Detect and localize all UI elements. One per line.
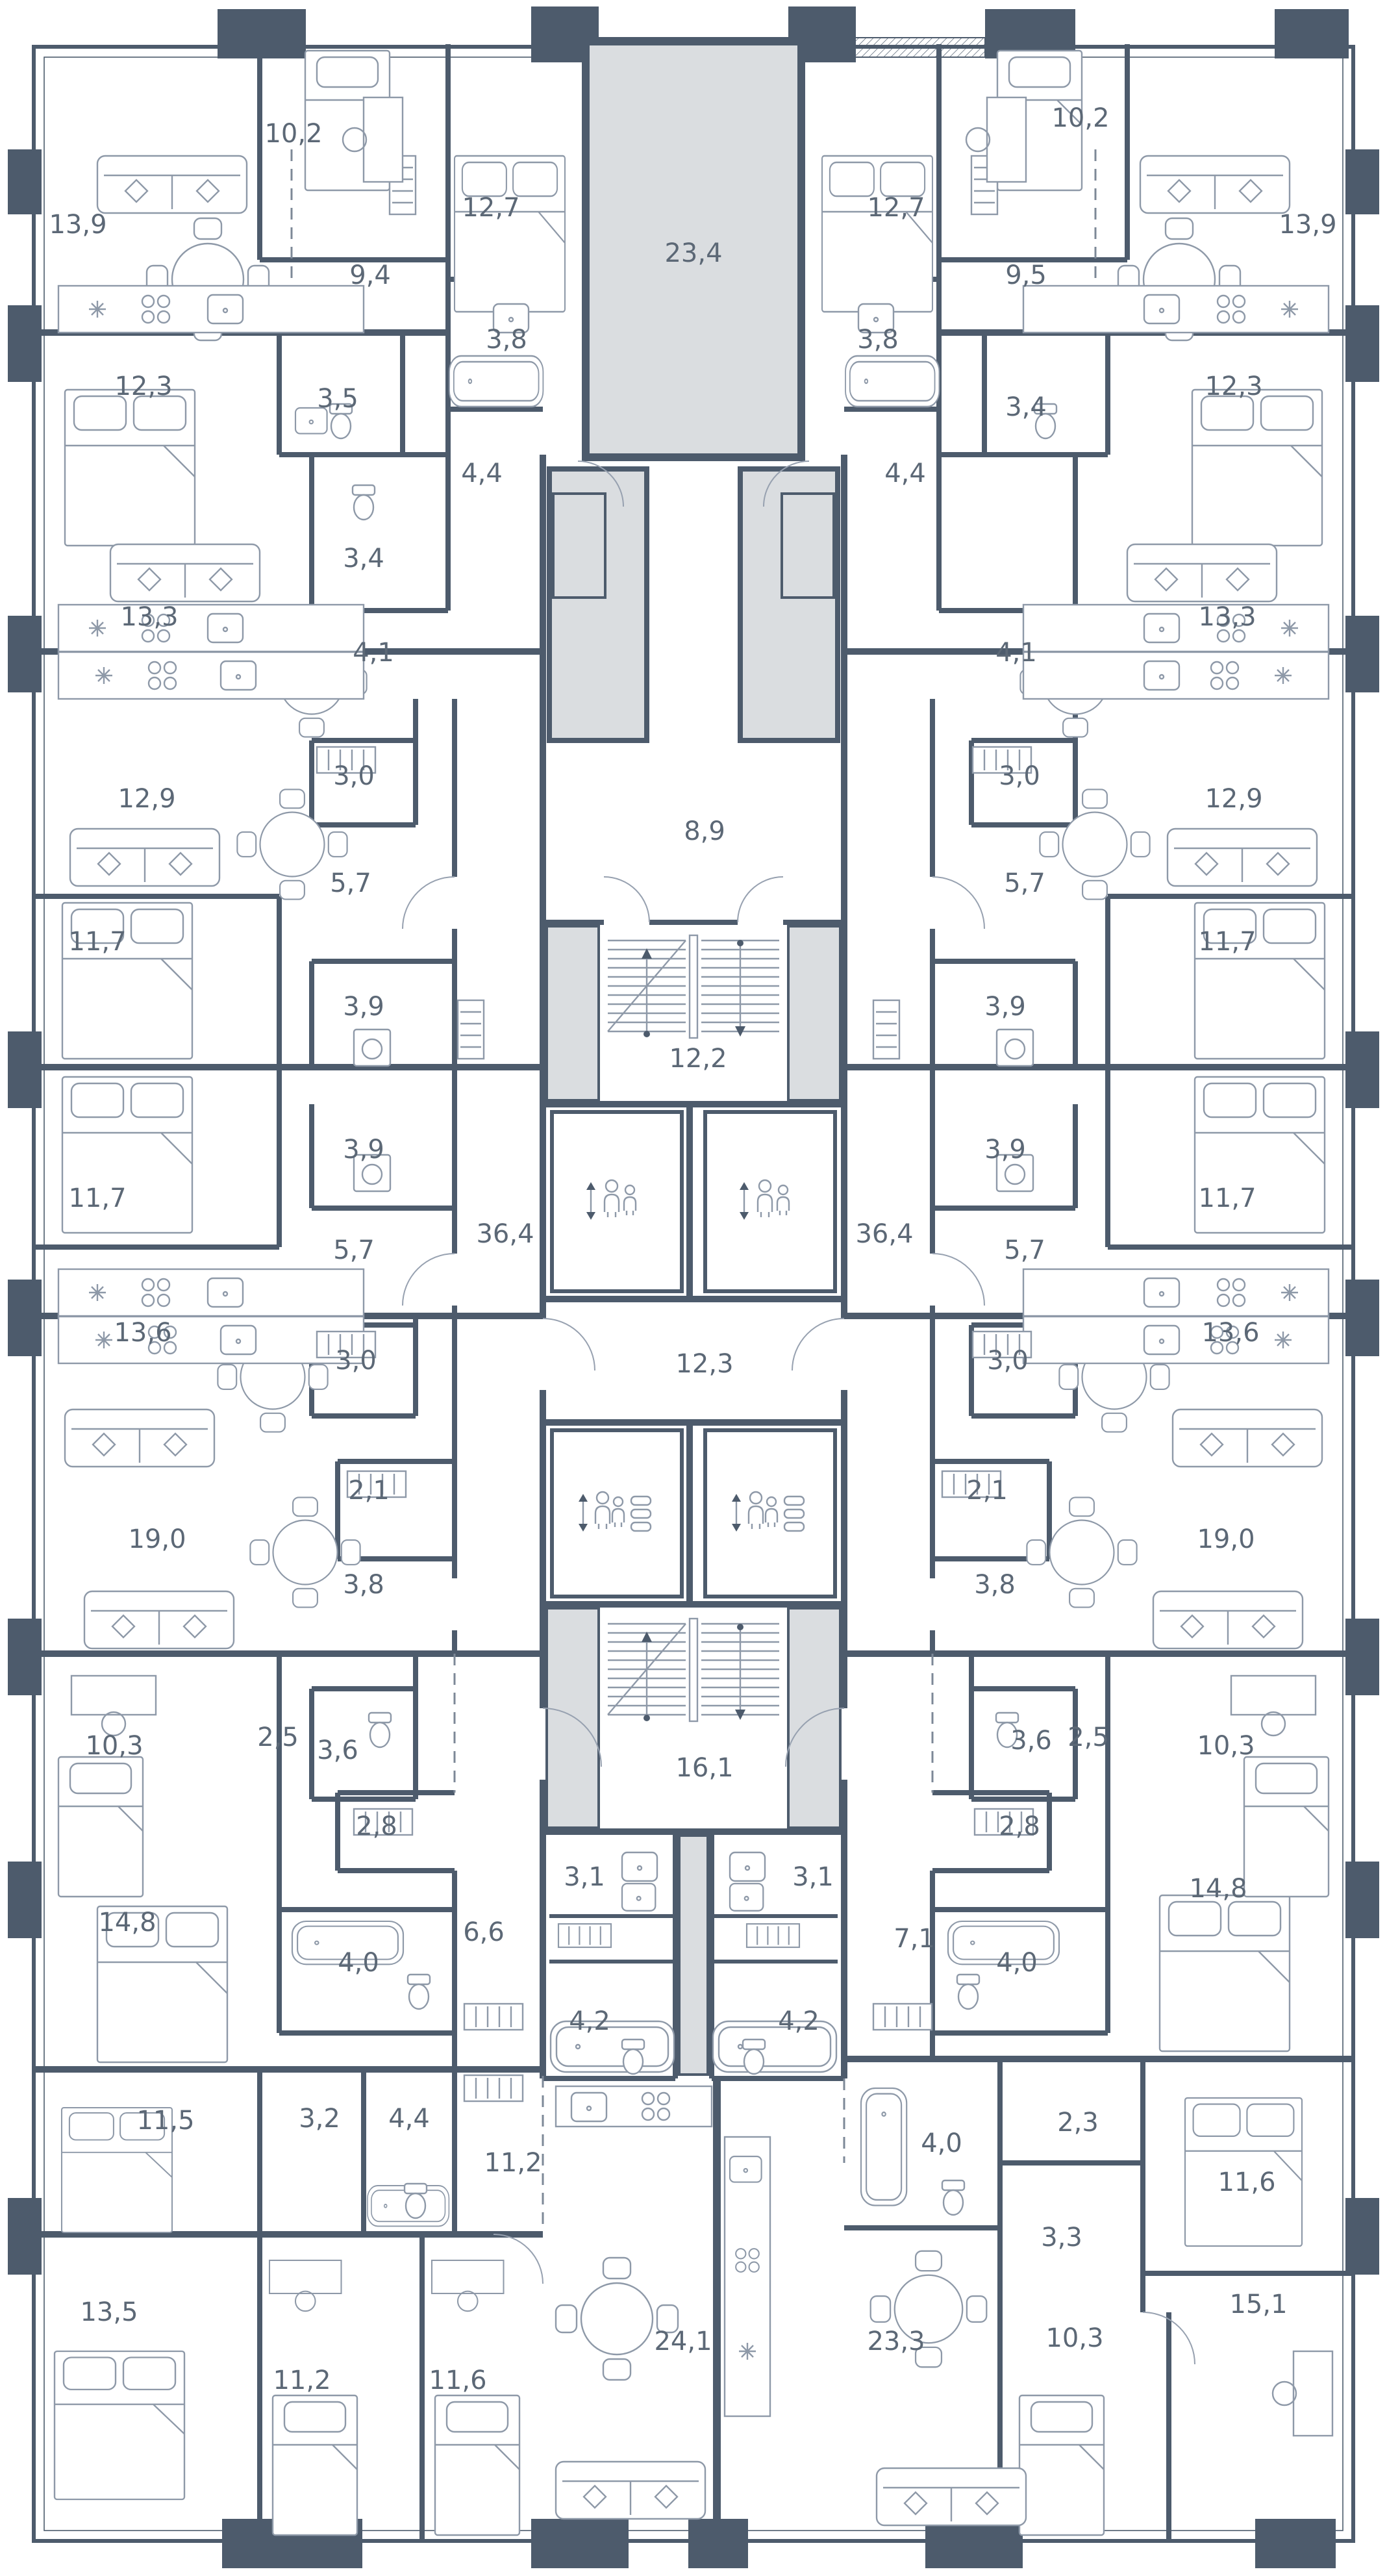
stairwell-lower: [543, 1608, 844, 1832]
floor-plan-drawing: [0, 0, 1387, 2576]
stairwell-upper: [543, 926, 844, 1104]
passenger-elevators: [543, 1104, 844, 1299]
core-bathrooms: [543, 1832, 844, 2078]
freight-elevators: [543, 1422, 844, 1604]
building-core: [543, 42, 844, 2541]
service-shaft: [586, 42, 801, 457]
floor-plan: 10,213,912,723,412,710,213,99,49,512,33,…: [0, 0, 1387, 2576]
